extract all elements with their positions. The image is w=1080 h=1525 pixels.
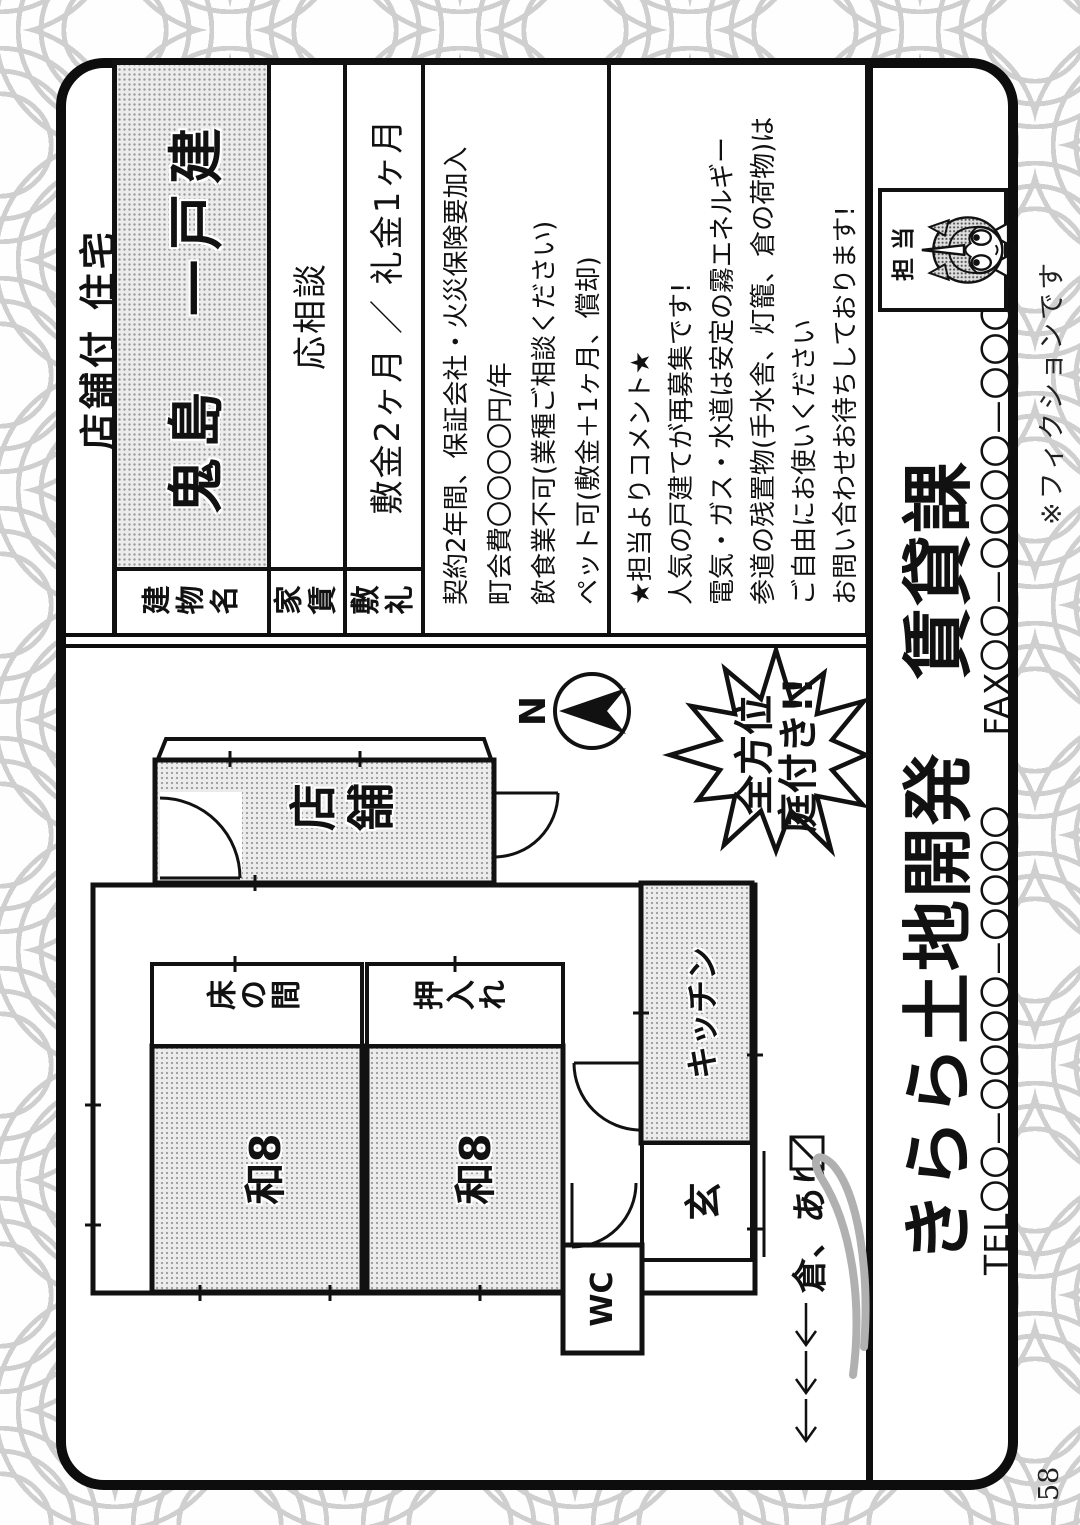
tengu-nose <box>922 245 964 255</box>
table-row-building-name: 建物名 鬼島 一戸建 <box>117 65 267 633</box>
kitchen-label: キッチン <box>676 883 724 1143</box>
rent-header-cell: 家賃 <box>271 567 343 633</box>
condition-line: 飲食業不可(業種ご相談ください) <box>523 146 567 605</box>
storage-note-text: 倉、あり <box>791 1153 831 1294</box>
building-name-value-cell: 鬼島 一戸建 <box>117 65 267 567</box>
comment-line: 電気・ガス・水道は安定の霧エネルギー <box>703 117 744 605</box>
store-door-notch <box>160 792 242 876</box>
staff-label: 担当 <box>884 192 918 308</box>
page-number: 58 <box>1034 1467 1065 1501</box>
deposit-value: 敷金2ヶ月 ／ 礼金1ヶ月 <box>360 118 409 515</box>
staff-box: 担当 <box>878 188 1008 312</box>
table-row-agent-comment: ★担当よりコメント★ 人気の戸建てが再募集です! 電気・ガス・水道は安定の霧エネ… <box>607 65 867 633</box>
hair-horn-right <box>930 220 949 235</box>
deposit-header: 敷礼 <box>350 581 418 623</box>
store-eave-line <box>158 739 491 759</box>
comment-line: お問い合わせお待ちしております! <box>826 117 867 605</box>
pupil-right <box>973 234 980 241</box>
japanese-room-2-label: 和8 <box>442 1046 503 1292</box>
pupil-left <box>973 259 980 266</box>
entrance-label: 玄 <box>673 1143 728 1260</box>
fiction-disclaimer: ※フィクションです <box>1030 260 1069 525</box>
rent-header: 家賃 <box>273 581 341 623</box>
agency-tel: TEL〇〇—〇〇〇〇—〇〇〇〇 <box>977 805 1016 1275</box>
comment-line: 参道の残置物(手水舎、灯籠、倉の荷物)は <box>744 117 785 605</box>
agency-fax: FAX〇〇—〇〇〇〇—〇〇〇〇 <box>977 263 1016 735</box>
oni-staff-character-icon <box>918 201 1010 299</box>
table-row-conditions: 契約2年間、保証会社・火災保険要加入 町会費〇〇〇〇円/年 飲食業不可(業種ご相… <box>421 65 607 633</box>
listing-table: 建物名 鬼島 一戸建 家賃 応相談 敷礼 敷金2ヶ月 ／ 礼金1 <box>112 60 870 633</box>
wc-label: WC <box>585 1245 620 1353</box>
building-name-value: 鬼島 一戸建 <box>152 118 233 514</box>
compass-north-label: N <box>513 696 554 726</box>
hair-horn-left <box>930 264 949 279</box>
agency-name: きらら土地開発 賃貸課 <box>882 460 984 1263</box>
burst-text-line2: 庭付き!! <box>776 677 822 833</box>
closet-label: 押入れ <box>413 977 509 1021</box>
flyer-page-rotated: 店舗付 住宅 建物名 鬼島 一戸建 家賃 応相談 敷礼 <box>0 0 1080 1525</box>
condition-line: 町会費〇〇〇〇円/年 <box>479 146 523 605</box>
burst-text-line1: 全方位 <box>732 695 778 816</box>
rent-value: 応相談 <box>283 262 332 370</box>
agency-contact: TEL〇〇—〇〇〇〇—〇〇〇〇 FAX〇〇—〇〇〇〇—〇〇〇〇 <box>970 263 1018 1275</box>
rent-value-cell: 応相談 <box>271 65 343 567</box>
deposit-header-cell: 敷礼 <box>347 567 421 633</box>
tokonoma-label: 床の間 <box>206 977 302 1021</box>
comment-line: ご自由にお使いください <box>785 117 826 605</box>
comment-line: ★担当よりコメント★ <box>621 117 662 605</box>
table-row-deposit: 敷礼 敷金2ヶ月 ／ 礼金1ヶ月 <box>343 65 421 633</box>
table-row-rent: 家賃 応相談 <box>267 65 343 633</box>
condition-line: ペット可(敷金＋1ヶ月、償却) <box>567 146 611 605</box>
storage-direction-arrows-icon <box>796 1303 816 1441</box>
building-name-header-cell: 建物名 <box>117 567 267 633</box>
building-name-header: 建物名 <box>141 581 243 623</box>
section-divider-line-inner <box>66 633 866 637</box>
comment-line: 人気の戸建てが再募集です! <box>662 117 703 605</box>
scanned-page: 店舗付 住宅 建物名 鬼島 一戸建 家賃 応相談 敷礼 <box>0 0 1080 1525</box>
condition-line: 契約2年間、保証会社・火災保険要加入 <box>435 146 479 605</box>
store-entrance-door-arc <box>494 793 558 857</box>
deposit-value-cell: 敷金2ヶ月 ／ 礼金1ヶ月 <box>347 65 421 567</box>
store-label: 店舗 <box>288 777 404 847</box>
japanese-room-1-label: 和8 <box>232 1046 293 1292</box>
